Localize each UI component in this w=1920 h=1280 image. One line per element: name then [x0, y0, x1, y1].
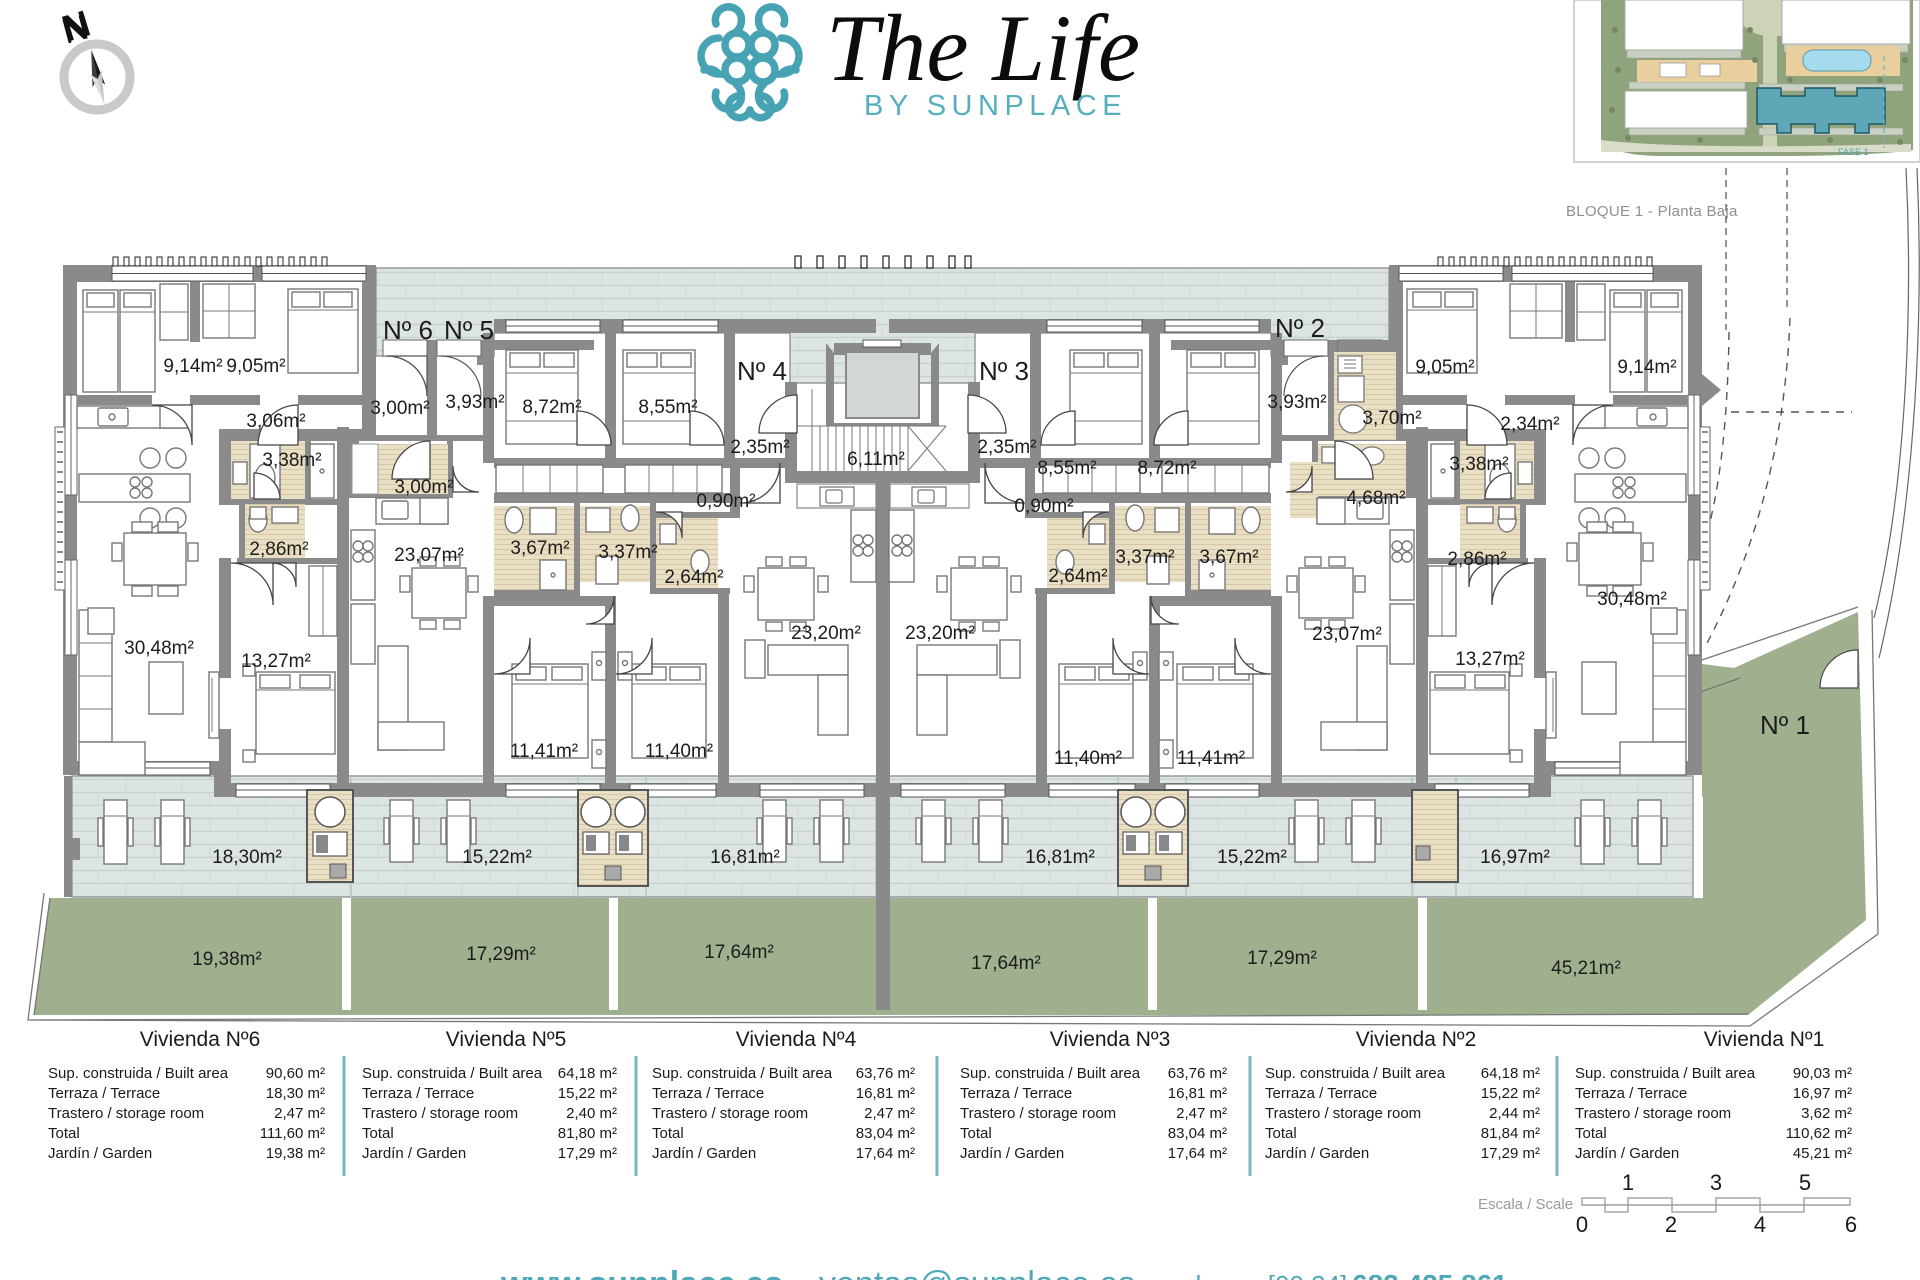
svg-text:63,76 m²: 63,76 m²	[856, 1065, 915, 1082]
svg-text:45,21m²: 45,21m²	[1551, 958, 1621, 979]
svg-text:13,27m²: 13,27m²	[1455, 649, 1525, 670]
svg-text:Sup. construida / Built area: Sup. construida / Built area	[48, 1065, 229, 1082]
svg-text:81,80 m²: 81,80 m²	[558, 1125, 617, 1142]
svg-text:8,55m²: 8,55m²	[1037, 458, 1096, 479]
svg-text:17,64 m²: 17,64 m²	[856, 1145, 915, 1162]
svg-text:17,29 m²: 17,29 m²	[1481, 1145, 1540, 1162]
svg-text:16,81m²: 16,81m²	[1025, 847, 1095, 868]
svg-text:11,41m²: 11,41m²	[510, 741, 578, 762]
svg-text:9,14m²: 9,14m²	[163, 356, 222, 377]
svg-text:23,20m²: 23,20m²	[905, 623, 975, 644]
svg-text:3,37m²: 3,37m²	[1115, 547, 1174, 568]
svg-text:Nº 1: Nº 1	[1760, 710, 1810, 740]
svg-text:111,60 m²: 111,60 m²	[260, 1125, 325, 1142]
svg-text:2,44 m²: 2,44 m²	[1489, 1105, 1540, 1122]
svg-text:2,47 m²: 2,47 m²	[274, 1105, 325, 1122]
svg-text:Nº 5: Nº 5	[444, 315, 494, 345]
svg-text:2,86m²: 2,86m²	[1447, 549, 1506, 570]
svg-text:Total: Total	[1265, 1125, 1297, 1142]
svg-text:64,18 m²: 64,18 m²	[1481, 1065, 1540, 1082]
svg-text:11,41m²: 11,41m²	[1177, 748, 1245, 769]
svg-text:2,64m²: 2,64m²	[664, 567, 723, 588]
svg-text:Vivienda Nº3: Vivienda Nº3	[1050, 1028, 1171, 1051]
svg-text:19,38 m²: 19,38 m²	[266, 1145, 325, 1162]
svg-text:-: -	[783, 1269, 793, 1280]
svg-text:18,30 m²: 18,30 m²	[266, 1085, 325, 1102]
svg-text:3,38m²: 3,38m²	[1449, 454, 1508, 475]
svg-text:Trastero / storage room: Trastero / storage room	[1265, 1105, 1421, 1122]
svg-text:Sup. construida / Built area: Sup. construida / Built area	[1575, 1065, 1756, 1082]
svg-text:Sup. construida / Built area: Sup. construida / Built area	[362, 1065, 543, 1082]
svg-text:Trastero / storage room: Trastero / storage room	[1575, 1105, 1731, 1122]
svg-text:81,84 m²: 81,84 m²	[1481, 1125, 1540, 1142]
svg-text:Nº 3: Nº 3	[979, 356, 1029, 386]
svg-text:9,05m²: 9,05m²	[226, 356, 285, 377]
svg-text:3,62 m²: 3,62 m²	[1801, 1105, 1852, 1122]
svg-text:Sup. construida / Built area: Sup. construida / Built area	[960, 1065, 1141, 1082]
svg-text:2,35m²: 2,35m²	[730, 437, 789, 458]
svg-text:30,48m²: 30,48m²	[124, 638, 194, 659]
svg-text:8,72m²: 8,72m²	[1137, 458, 1196, 479]
svg-text:ventas@sunplace.es: ventas@sunplace.es	[819, 1265, 1135, 1280]
svg-text:-: -	[1146, 1270, 1155, 1280]
svg-text:3,37m²: 3,37m²	[598, 542, 657, 563]
svg-text:2,40 m²: 2,40 m²	[566, 1105, 617, 1122]
svg-text:Terraza / Terrace: Terraza / Terrace	[1265, 1085, 1377, 1102]
svg-text:11,40m²: 11,40m²	[1054, 748, 1122, 769]
svg-text:17,64m²: 17,64m²	[971, 953, 1041, 974]
svg-text:2: 2	[1665, 1212, 1677, 1237]
svg-text:www.sunplace.es: www.sunplace.es	[500, 1265, 783, 1280]
svg-text:Sup. construida / Built area: Sup. construida / Built area	[1265, 1065, 1446, 1082]
svg-text:64,18 m²: 64,18 m²	[558, 1065, 617, 1082]
svg-text:15,22 m²: 15,22 m²	[558, 1085, 617, 1102]
svg-text:Vivienda Nº6: Vivienda Nº6	[140, 1028, 261, 1051]
svg-text:9,14m²: 9,14m²	[1617, 357, 1676, 378]
svg-text:Jardín / Garden: Jardín / Garden	[362, 1145, 466, 1162]
svg-text:15,22 m²: 15,22 m²	[1481, 1085, 1540, 1102]
svg-text:16,81m²: 16,81m²	[710, 847, 780, 868]
svg-text:BLOQUE 1 - Planta Baja: BLOQUE 1 - Planta Baja	[1566, 203, 1738, 220]
svg-text:90,03 m²: 90,03 m²	[1793, 1065, 1852, 1082]
svg-text:BY SUNPLACE: BY SUNPLACE	[864, 90, 1127, 122]
svg-text:23,20m²: 23,20m²	[791, 623, 861, 644]
svg-text:2,35m²: 2,35m²	[977, 437, 1036, 458]
svg-text:11,40m²: 11,40m²	[645, 741, 713, 762]
svg-text:Total: Total	[652, 1125, 684, 1142]
svg-text:Jardín / Garden: Jardín / Garden	[960, 1145, 1064, 1162]
svg-text:682 425 861: 682 425 861	[1352, 1269, 1508, 1280]
svg-text:4,68m²: 4,68m²	[1346, 488, 1405, 509]
svg-text:Trastero / storage room: Trastero / storage room	[960, 1105, 1116, 1122]
svg-text:16,81 m²: 16,81 m²	[1168, 1085, 1227, 1102]
svg-text:17,64m²: 17,64m²	[704, 942, 774, 963]
svg-text:Total: Total	[362, 1125, 394, 1142]
svg-text:Terraza / Terrace: Terraza / Terrace	[1575, 1085, 1687, 1102]
svg-text:83,04 m²: 83,04 m²	[856, 1125, 915, 1142]
svg-text:Total: Total	[1575, 1125, 1607, 1142]
svg-text:15,22m²: 15,22m²	[1217, 847, 1287, 868]
svg-text:Total: Total	[960, 1125, 992, 1142]
svg-text:Terraza / Terrace: Terraza / Terrace	[960, 1085, 1072, 1102]
svg-text:0: 0	[1576, 1212, 1588, 1237]
svg-text:Nº 6: Nº 6	[383, 315, 433, 345]
svg-text:Terraza / Terrace: Terraza / Terrace	[652, 1085, 764, 1102]
svg-text:16,97 m²: 16,97 m²	[1793, 1085, 1852, 1102]
svg-text:83,04 m²: 83,04 m²	[1168, 1125, 1227, 1142]
svg-text:Nº 2: Nº 2	[1275, 313, 1325, 343]
svg-text:phone: [00 34]: phone: [00 34]	[1181, 1270, 1347, 1280]
svg-text:FASE 1: FASE 1	[1838, 147, 1869, 157]
svg-text:Sup. construida / Built area: Sup. construida / Built area	[652, 1065, 833, 1082]
svg-text:6,11m²: 6,11m²	[847, 449, 905, 470]
svg-text:5: 5	[1799, 1170, 1811, 1195]
svg-text:Escala / Scale: Escala / Scale	[1478, 1196, 1573, 1213]
svg-text:2,34m²: 2,34m²	[1500, 414, 1559, 435]
svg-text:8,72m²: 8,72m²	[522, 397, 581, 418]
svg-text:3,00m²: 3,00m²	[370, 398, 429, 419]
svg-text:0,90m²: 0,90m²	[1014, 496, 1073, 517]
svg-text:Jardín / Garden: Jardín / Garden	[652, 1145, 756, 1162]
svg-text:2,86m²: 2,86m²	[249, 539, 308, 560]
svg-text:17,29m²: 17,29m²	[1247, 948, 1317, 969]
svg-text:110,62 m²: 110,62 m²	[1786, 1125, 1852, 1142]
svg-text:16,81 m²: 16,81 m²	[856, 1085, 915, 1102]
svg-text:3,38m²: 3,38m²	[262, 450, 321, 471]
svg-text:17,29m²: 17,29m²	[466, 944, 536, 965]
svg-text:Nº 4: Nº 4	[737, 356, 787, 386]
svg-text:30,48m²: 30,48m²	[1597, 589, 1667, 610]
svg-text:Vivienda Nº5: Vivienda Nº5	[446, 1028, 567, 1051]
svg-text:0,90m²: 0,90m²	[696, 491, 755, 512]
svg-text:Terraza / Terrace: Terraza / Terrace	[48, 1085, 160, 1102]
svg-text:2,47 m²: 2,47 m²	[1176, 1105, 1227, 1122]
svg-text:17,29 m²: 17,29 m²	[558, 1145, 617, 1162]
svg-text:19,38m²: 19,38m²	[192, 949, 262, 970]
svg-text:9,05m²: 9,05m²	[1415, 357, 1474, 378]
svg-text:90,60 m²: 90,60 m²	[266, 1065, 325, 1082]
svg-text:17,64 m²: 17,64 m²	[1168, 1145, 1227, 1162]
svg-text:Jardín / Garden: Jardín / Garden	[1575, 1145, 1679, 1162]
svg-text:1: 1	[1622, 1170, 1634, 1195]
svg-text:Trastero / storage room: Trastero / storage room	[362, 1105, 518, 1122]
svg-text:23,07m²: 23,07m²	[1312, 624, 1382, 645]
svg-text:Vivienda Nº4: Vivienda Nº4	[736, 1028, 857, 1051]
svg-text:4: 4	[1754, 1212, 1766, 1237]
svg-text:3,06m²: 3,06m²	[246, 411, 305, 432]
svg-text:15,22m²: 15,22m²	[462, 847, 532, 868]
svg-text:Jardín / Garden: Jardín / Garden	[1265, 1145, 1369, 1162]
svg-text:23,07m²: 23,07m²	[394, 545, 464, 566]
svg-text:13,27m²: 13,27m²	[241, 651, 311, 672]
svg-text:Vivienda Nº2: Vivienda Nº2	[1356, 1028, 1477, 1051]
svg-text:Terraza / Terrace: Terraza / Terrace	[362, 1085, 474, 1102]
svg-text:3,70m²: 3,70m²	[1362, 408, 1421, 429]
svg-text:Jardín / Garden: Jardín / Garden	[48, 1145, 152, 1162]
svg-text:63,76 m²: 63,76 m²	[1168, 1065, 1227, 1082]
svg-text:6: 6	[1845, 1212, 1857, 1237]
svg-text:3,00m²: 3,00m²	[394, 477, 453, 498]
svg-text:2,47 m²: 2,47 m²	[864, 1105, 915, 1122]
svg-text:45,21 m²: 45,21 m²	[1793, 1145, 1852, 1162]
svg-text:16,97m²: 16,97m²	[1480, 847, 1550, 868]
svg-text:3,93m²: 3,93m²	[445, 392, 504, 413]
svg-text:Total: Total	[48, 1125, 80, 1142]
svg-text:18,30m²: 18,30m²	[212, 847, 282, 868]
svg-text:Vivienda Nº1: Vivienda Nº1	[1704, 1028, 1825, 1051]
svg-text:Trastero / storage room: Trastero / storage room	[652, 1105, 808, 1122]
svg-text:3,67m²: 3,67m²	[510, 538, 569, 559]
svg-text:3: 3	[1710, 1170, 1722, 1195]
svg-text:3,93m²: 3,93m²	[1267, 392, 1326, 413]
svg-text:The Life: The Life	[826, 0, 1140, 101]
svg-text:Trastero / storage room: Trastero / storage room	[48, 1105, 204, 1122]
svg-text:8,55m²: 8,55m²	[638, 397, 697, 418]
svg-text:3,67m²: 3,67m²	[1199, 547, 1258, 568]
svg-text:2,64m²: 2,64m²	[1048, 566, 1107, 587]
